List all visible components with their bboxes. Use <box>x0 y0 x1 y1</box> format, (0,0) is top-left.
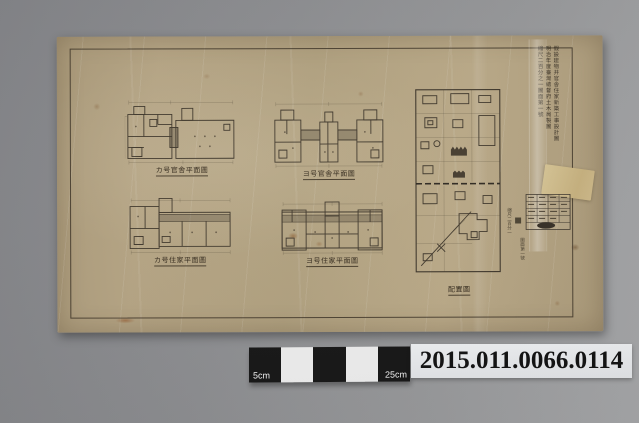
margin-annotation-col1: 假設建物并官舎住家新築工事設計圖 <box>551 45 558 141</box>
archival-photograph: カ号官舎平面圖 ヨ号官舎平面圖 <box>0 0 639 423</box>
scale-segment-white-1 <box>281 347 313 382</box>
floor-plan-2: ヨ号官舎平面圖 <box>269 102 389 180</box>
scale-label-25cm: 25cm <box>385 370 407 379</box>
seal-mark <box>515 217 521 223</box>
site-plan: 配置圖 <box>411 86 508 296</box>
scale-label-5cm: 5cm <box>253 371 270 380</box>
photo-scale-bar: 5cm 25cm <box>249 346 410 382</box>
margin-annotation-col3: 縮尺二百分之一圖面第一號 <box>536 45 543 117</box>
floor-plan-3-drawing <box>128 196 233 254</box>
floor-plan-4: ヨ号住家平面圖 <box>275 200 389 267</box>
floor-plan-1-caption: カ号官舎平面圖 <box>156 167 209 176</box>
floor-plan-3-caption: カ号住家平面圖 <box>154 257 207 266</box>
approval-stamp <box>525 193 571 233</box>
scale-segment-white-2 <box>346 347 378 382</box>
scale-segment-black-2 <box>313 347 345 382</box>
floor-plan-4-drawing <box>280 200 385 255</box>
floor-plan-2-caption: ヨ号官舎平面圖 <box>303 171 356 180</box>
floor-plan-1: カ号官舎平面圖 <box>121 100 243 176</box>
drawing-sheet: カ号官舎平面圖 ヨ号官舎平面圖 <box>57 35 604 332</box>
margin-annotation-col2: 明治年度臺灣總督府土木局製圖 <box>544 45 551 129</box>
site-plan-caption: 配置圖 <box>448 287 471 296</box>
scale-note: 縮尺二百分一 <box>506 208 512 254</box>
floor-plan-2-drawing <box>273 102 385 168</box>
catalog-number: 2015.011.0066.0114 <box>420 347 624 375</box>
floor-plan-3: カ号住家平面圖 <box>123 196 237 266</box>
sheet-note: 圖面第一號 <box>519 237 525 293</box>
floor-plan-1-drawing <box>125 100 239 164</box>
floor-plan-4-caption: ヨ号住家平面圖 <box>306 258 359 267</box>
catalog-number-label: 2015.011.0066.0114 <box>411 344 632 378</box>
site-plan-drawing <box>413 86 506 284</box>
